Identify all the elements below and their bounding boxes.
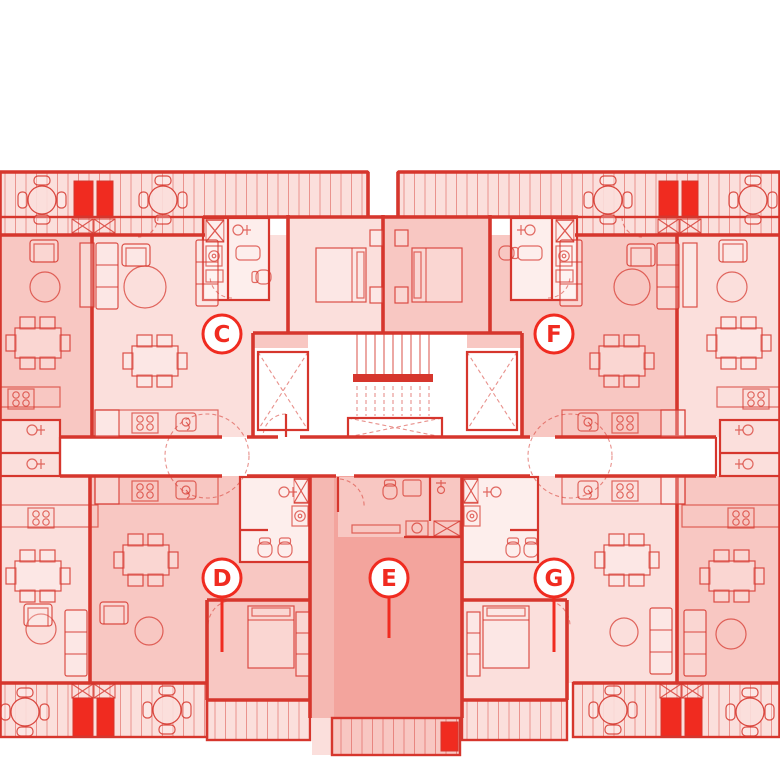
unit-label-g[interactable]: G	[535, 559, 573, 597]
floor-plan-page: C F D E G	[0, 0, 780, 780]
balcony-door-panel	[97, 698, 114, 736]
balcony-door-panel	[97, 181, 113, 216]
balcony-door-panel	[659, 181, 678, 216]
top-balcony-left	[18, 176, 187, 233]
svg-text:F: F	[546, 322, 562, 348]
balcony-door-panel	[441, 722, 458, 751]
balcony-door-panel	[661, 698, 681, 736]
balcony-door-panel	[74, 181, 93, 216]
svg-text:G: G	[545, 566, 564, 592]
balcony-door-panel	[685, 698, 702, 736]
svg-text:C: C	[214, 322, 231, 348]
balcony-door-panel	[682, 181, 698, 216]
unit-label-e[interactable]: E	[370, 559, 408, 597]
floor-plan-drawing: C F D E G	[0, 0, 780, 780]
bedroom-g	[467, 606, 529, 676]
bottom-balcony-right	[589, 684, 774, 736]
svg-text:E: E	[381, 566, 397, 592]
svg-text:D: D	[212, 566, 231, 592]
unit-label-f[interactable]: F	[535, 315, 573, 353]
bedroom-d	[248, 606, 309, 676]
unit-label-c[interactable]: C	[203, 315, 241, 353]
unit-label-d[interactable]: D	[203, 559, 241, 597]
balcony-door-panel	[73, 698, 93, 736]
